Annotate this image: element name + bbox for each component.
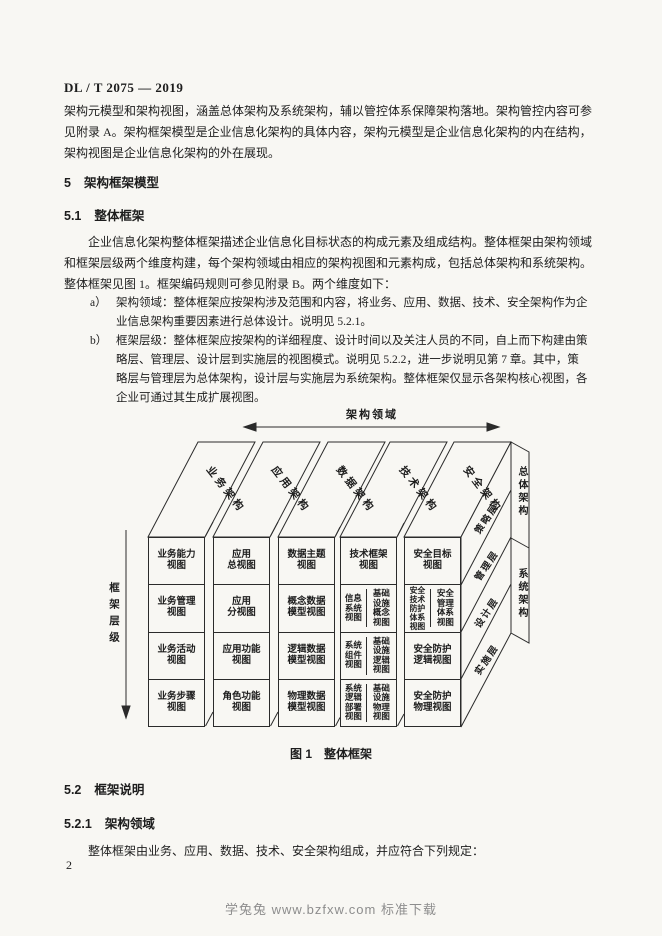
matrix-column-data: 数据主题 视图 概念数据 模型视图 逻辑数据 模型视图 物理数据 模型视图 xyxy=(278,537,335,727)
axis-label-framework-levels: 框架层级 xyxy=(106,582,121,648)
intro-paragraph: 架构元模型和架构视图，涵盖总体架构及系统架构，辅以管控体系保障架构落地。架构管控… xyxy=(64,101,598,164)
list-item-text: 架构领域：整体框架应按架构涉及范围和内容，将业务、应用、数据、技术、安全架构作为… xyxy=(116,294,588,332)
section-title: 架构框架模型 xyxy=(84,176,159,190)
list-item-marker: a） xyxy=(90,294,116,332)
matrix-column-security: 安全目标 视图 安全 技术 防护 体系 视图 安全 管理 体系 视图 安全防护 … xyxy=(404,537,461,727)
section-number: 5 xyxy=(64,176,71,190)
list-item-a: a） 架构领域：整体框架应按架构涉及范围和内容，将业务、应用、数据、技术、安全架… xyxy=(90,294,598,332)
section-number: 5.2.1 xyxy=(64,817,92,831)
list-item-marker: b） xyxy=(90,332,116,408)
cell-logical-data-model-view: 逻辑数据 模型视图 xyxy=(279,632,334,679)
matrix-column-application: 应用 总视图 应用 分视图 应用功能 视图 角色功能 视图 xyxy=(213,537,270,727)
tech-row-physical: 系统 逻辑 部署 视图 基础 设施 物理 视图 xyxy=(341,679,396,726)
cell-application-function-view: 应用功能 视图 xyxy=(214,632,269,679)
list-item-b: b） 框架层级：整体框架应按架构的详细程度、设计时间以及关注人员的不同，自上而下… xyxy=(90,332,598,408)
cell-business-capability-view: 业务能力 视图 xyxy=(149,538,204,584)
section-5-2-1-paragraph: 整体框架由业务、应用、数据、技术、安全架构组成，并应符合下列规定： xyxy=(64,841,598,862)
left-axis-arrow xyxy=(122,530,130,718)
security-row-systems: 安全 技术 防护 体系 视图 安全 管理 体系 视图 xyxy=(405,584,460,631)
document-page: DL / T 2075 — 2019 架构元模型和架构视图，涵盖总体架构及系统架… xyxy=(0,0,662,936)
section-title: 架构领域 xyxy=(105,817,155,831)
dimension-list: a） 架构领域：整体框架应按架构涉及范围和内容，将业务、应用、数据、技术、安全架… xyxy=(64,294,598,408)
section-5-2-heading: 5.2框架说明 xyxy=(64,782,598,798)
section-title: 整体框架 xyxy=(94,209,144,223)
cell-system-logical-deployment-view: 系统 逻辑 部署 视图 xyxy=(341,684,366,722)
cell-conceptual-data-model-view: 概念数据 模型视图 xyxy=(279,584,334,631)
section-5-1-paragraph: 企业信息化架构整体框架描述企业信息化目标状态的构成元素及组成结构。整体框架由架构… xyxy=(64,232,598,295)
axis-label-architecture-domain: 架构领域 xyxy=(308,406,436,422)
tech-row-concept: 信息 系统 视图 基础 设施 概念 视图 xyxy=(341,584,396,631)
group-label-system-architecture: 系统架构 xyxy=(514,568,529,620)
cell-security-protection-physical-view: 安全防护 物理视图 xyxy=(405,679,460,726)
figure-1-overall-framework: 架构领域 框架层级 业务架构 应用架构 数据架构 技术架构 安全架构 业务能力 … xyxy=(64,400,598,752)
figure-caption: 图 1 整体框架 xyxy=(64,745,598,762)
page-number: 2 xyxy=(66,858,72,873)
cell-role-function-view: 角色功能 视图 xyxy=(214,679,269,726)
cell-information-system-view: 信息 系统 视图 xyxy=(341,594,366,623)
cell-security-protection-logical-view: 安全防护 逻辑视图 xyxy=(405,632,460,679)
cell-security-technical-protection-system-view: 安全 技术 防护 体系 视图 xyxy=(405,586,430,631)
cell-technology-framework-view: 技术框架 视图 xyxy=(341,538,396,584)
tech-row-logical: 系统 组件 视图 基础 设施 逻辑 视图 xyxy=(341,632,396,679)
group-label-overall-architecture: 总体架构 xyxy=(514,466,529,518)
cell-infrastructure-logical-view: 基础 设施 逻辑 视图 xyxy=(366,637,396,675)
cell-physical-data-model-view: 物理数据 模型视图 xyxy=(279,679,334,726)
top-axis-arrow xyxy=(244,423,499,431)
watermark-text: 学兔兔 www.bzfxw.com 标准下载 xyxy=(0,899,662,918)
cell-data-subject-view: 数据主题 视图 xyxy=(279,538,334,584)
slab-top-faces xyxy=(148,442,511,537)
section-number: 5.2 xyxy=(64,783,81,797)
cell-business-step-view: 业务步骤 视图 xyxy=(149,679,204,726)
cell-infrastructure-concept-view: 基础 设施 概念 视图 xyxy=(366,589,396,627)
matrix-column-business: 业务能力 视图 业务管理 视图 业务活动 视图 业务步骤 视图 xyxy=(148,537,205,727)
section-title: 框架说明 xyxy=(94,783,144,797)
cell-application-sub-view: 应用 分视图 xyxy=(214,584,269,631)
matrix-column-technology: 技术框架 视图 信息 系统 视图 基础 设施 概念 视图 系统 组件 视图 基础… xyxy=(340,537,397,727)
standard-number: DL / T 2075 — 2019 xyxy=(64,80,598,96)
cell-infrastructure-physical-view: 基础 设施 物理 视图 xyxy=(366,684,396,722)
cell-system-component-view: 系统 组件 视图 xyxy=(341,641,366,670)
cell-security-objective-view: 安全目标 视图 xyxy=(405,538,460,584)
cell-security-management-system-view: 安全 管理 体系 视图 xyxy=(430,589,460,627)
section-number: 5.1 xyxy=(64,209,81,223)
section-5-1-heading: 5.1整体框架 xyxy=(64,208,598,224)
list-item-text: 框架层级：整体框架应按架构的详细程度、设计时间以及关注人员的不同，自上而下构建由… xyxy=(116,332,588,408)
section-5-2-1-heading: 5.2.1架构领域 xyxy=(64,816,598,832)
cell-business-management-view: 业务管理 视图 xyxy=(149,584,204,631)
section-5-heading: 5架构框架模型 xyxy=(64,175,598,191)
cell-business-activity-view: 业务活动 视图 xyxy=(149,632,204,679)
cell-application-overview: 应用 总视图 xyxy=(214,538,269,584)
